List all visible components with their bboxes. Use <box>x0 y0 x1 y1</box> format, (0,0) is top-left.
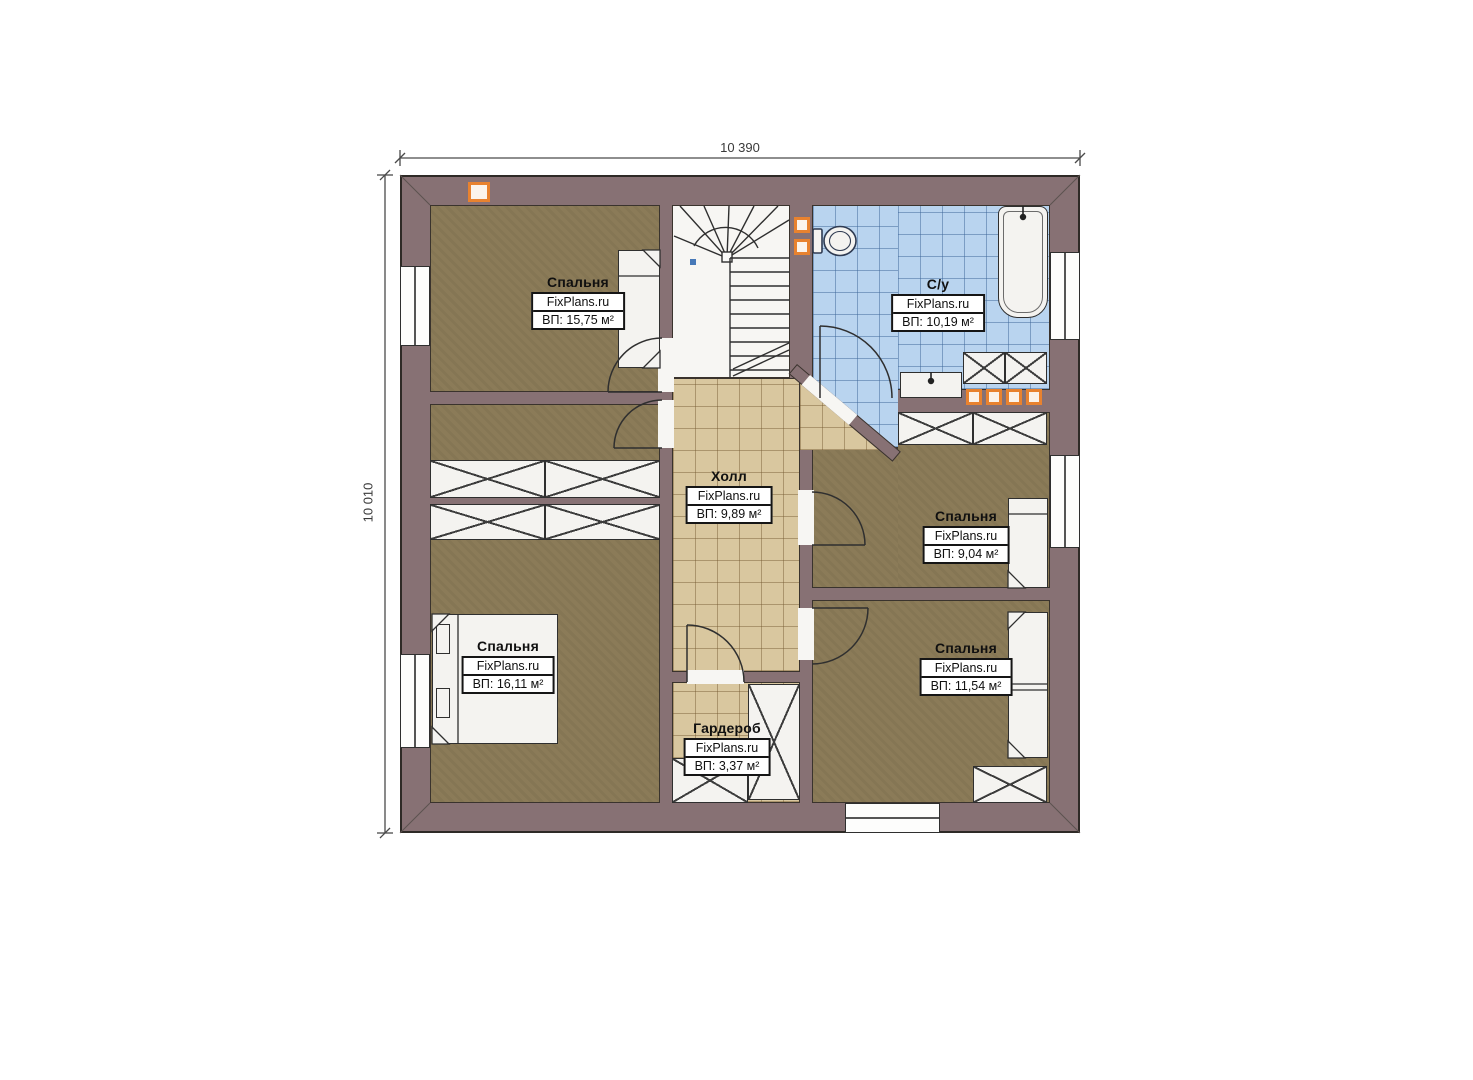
door-opening-bedroom-bottom-right <box>798 608 814 660</box>
room-name: Спальня <box>531 274 625 290</box>
vent-top-wall <box>468 182 490 202</box>
room-name: Холл <box>686 468 773 484</box>
room-label-bathroom: С/у FixPlans.ru ВП: 10,19 м² <box>891 276 985 332</box>
room-area: ВП: 9,89 м² <box>688 504 771 522</box>
window-bottom <box>845 803 940 833</box>
window-right-middle <box>1050 455 1080 548</box>
room-name: С/у <box>891 276 985 292</box>
chimney-square-3 <box>1006 389 1022 405</box>
door-opening-bedroom-top-left <box>658 338 674 392</box>
vanity-sink <box>900 372 962 398</box>
bed-bottom-right <box>1008 612 1048 758</box>
brand-watermark: FixPlans.ru <box>688 488 771 504</box>
window-left-bottom <box>400 654 430 748</box>
top-dimension-label: 10 390 <box>705 140 775 155</box>
pillow-bottom-left-2 <box>436 688 450 718</box>
floor-plan-page: 10 390 10 010 <box>0 0 1473 1080</box>
room-name: Спальня <box>920 640 1013 656</box>
chimney-square-2 <box>986 389 1002 405</box>
room-name: Спальня <box>462 638 555 654</box>
bedroom-bottom-right-closet <box>973 766 1047 803</box>
room-area: ВП: 11,54 м² <box>922 676 1011 694</box>
staircase-floor <box>672 205 790 378</box>
brand-watermark: FixPlans.ru <box>464 658 553 674</box>
bathtub-inner <box>1003 211 1043 313</box>
room-area: ВП: 9,04 м² <box>925 544 1008 562</box>
room-label-bedroom-mid-right: Спальня FixPlans.ru ВП: 9,04 м² <box>923 508 1010 564</box>
brand-watermark: FixPlans.ru <box>922 660 1011 676</box>
room-label-bedroom-top-left: Спальня FixPlans.ru ВП: 15,75 м² <box>531 274 625 330</box>
left-dimension-label: 10 010 <box>360 483 375 523</box>
brand-watermark: FixPlans.ru <box>533 294 623 310</box>
closet-strip-4 <box>545 504 660 540</box>
room-area: ВП: 16,11 м² <box>464 674 553 692</box>
window-right-top <box>1050 252 1080 340</box>
chimney-square-4 <box>1026 389 1042 405</box>
room-name: Гардероб <box>684 720 771 736</box>
bathroom-closet-2 <box>1005 352 1047 384</box>
bathroom-closet-1 <box>963 352 1005 384</box>
brand-watermark: FixPlans.ru <box>925 528 1008 544</box>
room-area: ВП: 15,75 м² <box>533 310 623 328</box>
closet-strip-3 <box>430 504 545 540</box>
room-area: ВП: 10,19 м² <box>893 312 983 330</box>
window-left-top <box>400 266 430 346</box>
hall-floor <box>672 378 800 672</box>
door-opening-wardrobe <box>687 670 744 684</box>
brand-watermark: FixPlans.ru <box>686 740 769 756</box>
bed-mid-right <box>1008 498 1048 588</box>
door-opening-bedroom-mid-right <box>798 490 814 545</box>
room-label-wardrobe: Гардероб FixPlans.ru ВП: 3,37 м² <box>684 720 771 776</box>
room-label-bedroom-bottom-left: Спальня FixPlans.ru ВП: 16,11 м² <box>462 638 555 694</box>
closet-strip-2 <box>545 460 660 498</box>
room-area: ВП: 3,37 м² <box>686 756 769 774</box>
chimney-square-1 <box>966 389 982 405</box>
room-name: Спальня <box>923 508 1010 524</box>
room-label-hall: Холл FixPlans.ru ВП: 9,89 м² <box>686 468 773 524</box>
brand-watermark: FixPlans.ru <box>893 296 983 312</box>
closet-divider-wall <box>430 497 660 504</box>
bedroom-mid-right-closet-2 <box>973 412 1047 445</box>
vent-stair-wall-2 <box>794 239 810 255</box>
room-label-bedroom-bottom-right: Спальня FixPlans.ru ВП: 11,54 м² <box>920 640 1013 696</box>
bedroom-mid-right-closet-1 <box>898 412 973 445</box>
door-opening-bedroom-bottom-left <box>658 400 674 448</box>
pillow-bottom-left-1 <box>436 624 450 654</box>
bedroom-mid-right-floor-left <box>812 448 898 588</box>
vent-stair-wall-1 <box>794 217 810 233</box>
closet-strip-1 <box>430 460 545 498</box>
